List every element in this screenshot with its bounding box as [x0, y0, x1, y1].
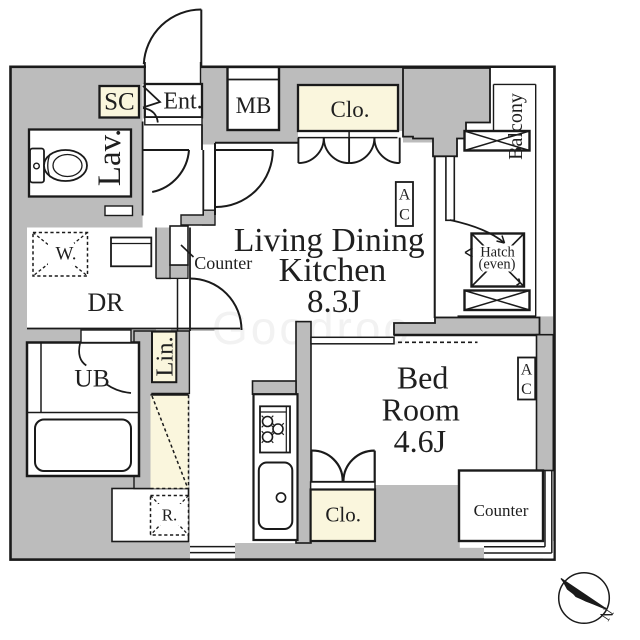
- svg-text:SC: SC: [104, 88, 135, 115]
- svg-text:8.3J: 8.3J: [307, 284, 361, 320]
- svg-text:Lin.: Lin.: [152, 336, 179, 376]
- svg-text:Clo.: Clo.: [325, 503, 361, 527]
- svg-text:A: A: [521, 362, 533, 379]
- svg-text:(even): (even): [478, 257, 515, 273]
- svg-text:A: A: [399, 187, 411, 204]
- svg-text:Clo.: Clo.: [331, 97, 370, 122]
- svg-text:DR: DR: [87, 288, 124, 317]
- svg-text:UB: UB: [74, 364, 109, 393]
- svg-text:Lav.: Lav.: [92, 129, 128, 186]
- svg-text:Ent.: Ent.: [163, 89, 202, 115]
- svg-text:C: C: [399, 207, 410, 224]
- svg-text:Counter: Counter: [194, 253, 252, 273]
- svg-text:Counter: Counter: [474, 501, 529, 520]
- svg-text:MB: MB: [236, 93, 272, 118]
- svg-text:Bed: Bed: [397, 360, 449, 396]
- svg-text:4.6J: 4.6J: [394, 423, 446, 459]
- svg-text:C: C: [521, 381, 532, 398]
- svg-text:W.: W.: [56, 244, 77, 265]
- svg-text:Balcony: Balcony: [505, 93, 527, 160]
- svg-text:R.: R.: [162, 506, 178, 525]
